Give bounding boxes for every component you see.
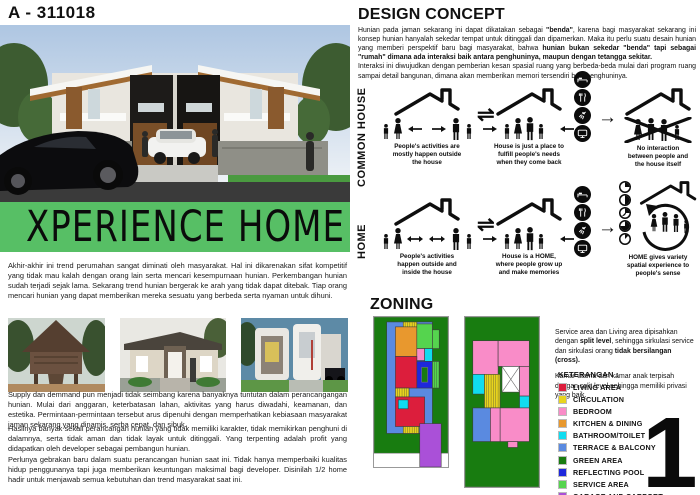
circular-people-icon [644,204,688,249]
house-icon [494,197,564,227]
floor-plan-upper [464,316,540,488]
shower-icon [574,222,591,239]
result-arrow-icon: → [598,108,617,127]
diagram-caption: House is a HOME, where people grow up an… [496,253,562,277]
design-concept-title: DESIGN CONCEPT [358,6,505,24]
people-coming-home-icon [482,117,576,141]
grass-strip [228,175,350,182]
diagram-caption: People's activities happen outside and i… [397,253,456,277]
legend-label: BATHROOM/TOILET [573,431,645,440]
design-concept-text: Hunian pada jaman sekarang ini dapat dik… [358,26,696,81]
diagram-common-item3: No interaction between people and the ho… [616,87,700,169]
bed-icon [574,186,591,203]
house-icon [641,183,694,204]
intro-paragraph: Akhir-akhir ini trend perumahan sangat d… [8,261,347,301]
body-paragraph: Hasilnya banyak sekali perancangan hunia… [8,424,347,454]
legend-swatch-icon [558,443,567,452]
legend-swatch-icon [558,419,567,428]
legend-swatch-icon [558,383,567,392]
diagram-caption: HOME gives variety spatial experience to… [627,254,689,278]
board-page-number: 1 [642,412,698,494]
photo-minimalist-house [120,318,226,392]
legend-label: KITCHEN & DINING [573,419,642,428]
row-label-home: HOME [356,212,370,272]
result-arrow-icon: → [598,218,617,237]
house-icon [494,87,564,117]
legend-label: CIRCULATION [573,395,624,404]
diagram-caption: People's activities are mostly happen ou… [393,143,462,167]
legend-label: BEDROOM [573,407,612,416]
shower-icon [574,107,591,124]
legend-swatch-icon [558,395,567,404]
legend-swatch-icon [558,456,567,465]
row-label-common-house: COMMON HOUSE [356,85,370,190]
legend-label: SERVICE AREA [573,480,629,489]
title-banner: XPERIENCE HOME [0,202,350,252]
legend-swatch-icon [558,407,567,416]
house-icon [392,87,462,117]
tv-icon [574,240,591,257]
photo-contemporary-house [241,318,348,392]
legend-item: LIVING AREA [558,383,698,392]
people-outside-icon [376,117,478,141]
diagram-home-item1: People's activities happen outside and i… [376,197,478,277]
presentation-board: A - 311018 [0,0,700,495]
diagram-caption: No interaction between people and the ho… [628,145,688,169]
legend-title: KETERANGAN : [558,370,698,379]
zoning-note: Service area dan Living area dipisahkan … [555,328,697,365]
legend-swatch-icon [558,468,567,477]
diagram-common-item2: House is just a place to fulfill people'… [482,87,576,167]
floor-plan-ground [373,316,449,468]
zoning-title: ZONING [370,296,433,314]
body-paragraph: Perlunya gebrakan baru dalam suatu peran… [8,455,347,485]
people-inside-outside-icon [376,227,478,251]
concept-paragraph: Interaksi ini diwujudkan dengan pemberia… [358,62,696,80]
house-icon [392,197,462,227]
diagram-common-item1: People's activities are mostly happen ou… [376,87,478,167]
legend-label: REFLECTING POOL [573,468,644,477]
concept-paragraph: Hunian pada jaman sekarang ini dapat dik… [358,26,696,62]
board-id-label: A - 311018 [8,3,96,23]
spatial-experience-icon [616,180,700,252]
hero-render-image [0,25,350,202]
bed-icon [574,71,591,88]
no-interaction-icon [616,117,700,143]
house-icon [623,87,693,117]
reference-photos [8,318,348,392]
legend-swatch-icon [558,480,567,489]
legend-swatch-icon [558,431,567,440]
diagram-home-item3: HOME gives variety spatial experience to… [616,180,700,278]
utensils-icon [574,204,591,221]
diagram-home-item2: House is a HOME, where people grow up an… [482,197,576,277]
people-coming-home-icon [482,227,576,251]
clock-icons [619,181,631,245]
tv-icon [574,125,591,142]
legend-label: GREEN AREA [573,456,623,465]
project-title: XPERIENCE HOME [26,202,350,252]
diagram-caption: House is just a place to fulfill people'… [494,143,564,167]
needs-icons-column [574,186,591,257]
utensils-icon [574,89,591,106]
legend-label: LIVING AREA [573,383,621,392]
needs-icons-column [574,71,591,142]
photo-traditional-house [8,318,105,392]
